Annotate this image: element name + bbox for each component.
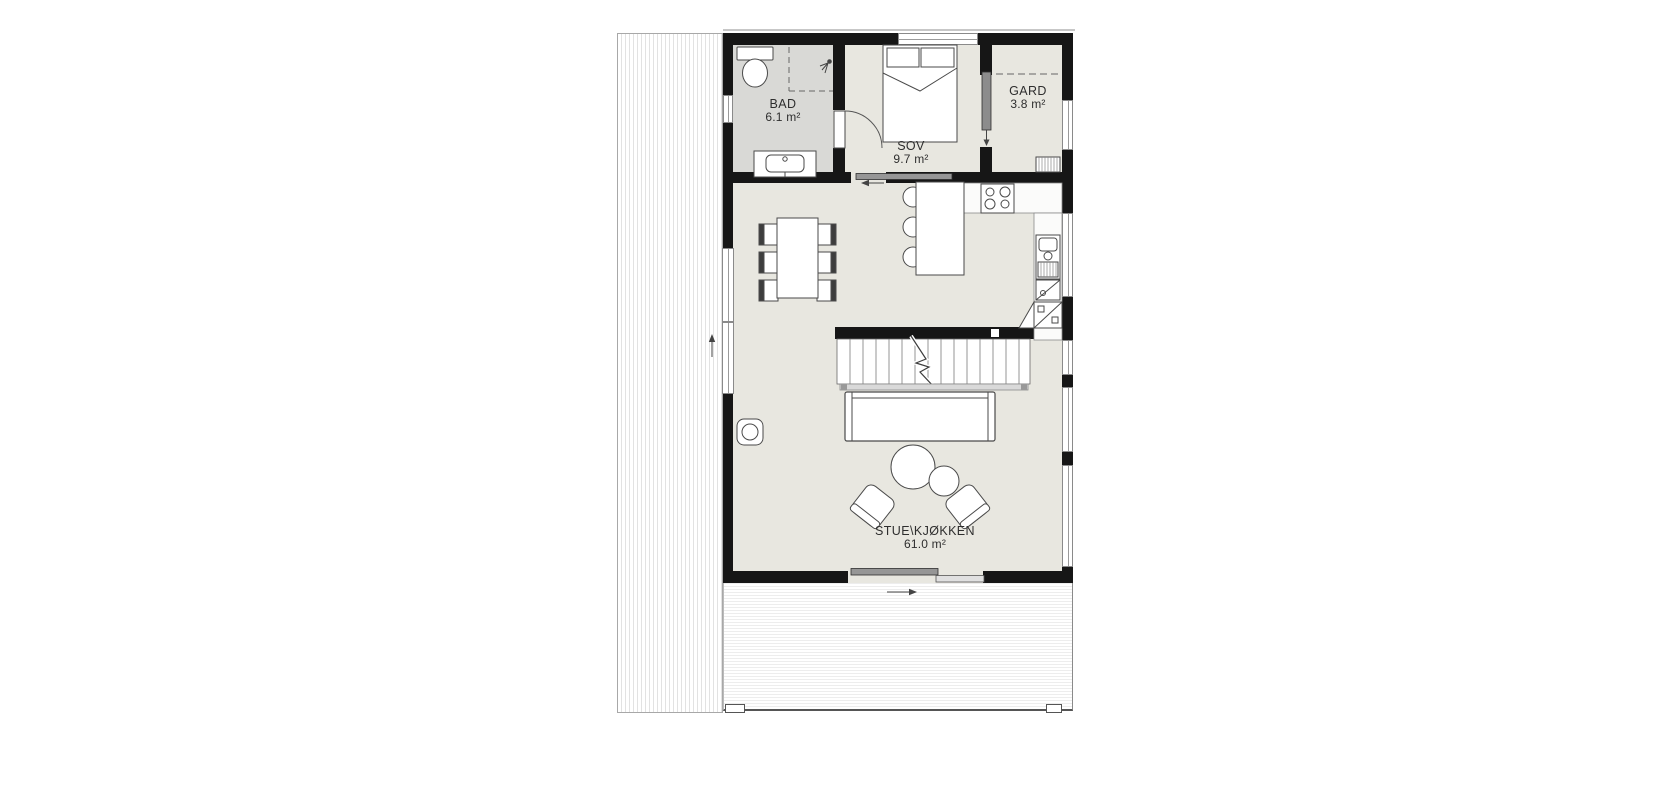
dining-set <box>759 218 836 301</box>
room-label-bad: BAD 6.1 m² <box>733 97 833 125</box>
toilet <box>737 47 773 87</box>
gard-bench <box>1036 157 1060 172</box>
dining-chair <box>817 224 836 245</box>
dining-chair <box>759 252 778 273</box>
shower <box>789 47 833 91</box>
stair-rail <box>840 384 1028 390</box>
entrance-sliding-door <box>851 569 984 583</box>
floor-plan: BAD 6.1 m² SOV 9.7 m² GARD 3.8 m² STUE\K… <box>0 0 1670 800</box>
vanity-sink <box>754 151 816 177</box>
cooktop <box>981 184 1014 213</box>
coffee-table-small <box>929 466 959 496</box>
armchair <box>849 482 897 530</box>
room-area: 3.8 m² <box>986 98 1070 112</box>
room-name: STUE\KJØKKEN <box>815 524 1035 538</box>
dining-chair <box>817 252 836 273</box>
dishwasher <box>1036 280 1060 300</box>
kitchen-sink <box>1036 235 1060 279</box>
sofa <box>845 392 995 441</box>
dining-table <box>777 218 818 298</box>
entry-arrow <box>887 589 917 595</box>
kitchen-island <box>903 182 964 275</box>
double-bed <box>883 45 957 142</box>
dining-chair <box>817 280 836 301</box>
room-name: GARD <box>986 84 1070 98</box>
room-label-stue-kjokken: STUE\KJØKKEN 61.0 m² <box>815 524 1035 552</box>
room-label-sov: SOV 9.7 m² <box>861 139 961 167</box>
room-name: BAD <box>733 97 833 111</box>
shower-head-icon <box>820 60 831 73</box>
dining-chair <box>759 224 778 245</box>
room-name: SOV <box>861 139 961 153</box>
room-area: 9.7 m² <box>861 153 961 167</box>
room-area: 61.0 m² <box>815 538 1035 552</box>
dining-chair <box>759 280 778 301</box>
room-area: 6.1 m² <box>733 111 833 125</box>
coffee-table-large <box>891 445 935 489</box>
wood-stove <box>737 419 763 445</box>
furniture-layer <box>0 0 1670 800</box>
left-door-arrow <box>709 334 715 357</box>
room-label-gard: GARD 3.8 m² <box>986 84 1070 112</box>
corner-cabinet <box>1019 302 1062 328</box>
staircase <box>837 329 1030 390</box>
